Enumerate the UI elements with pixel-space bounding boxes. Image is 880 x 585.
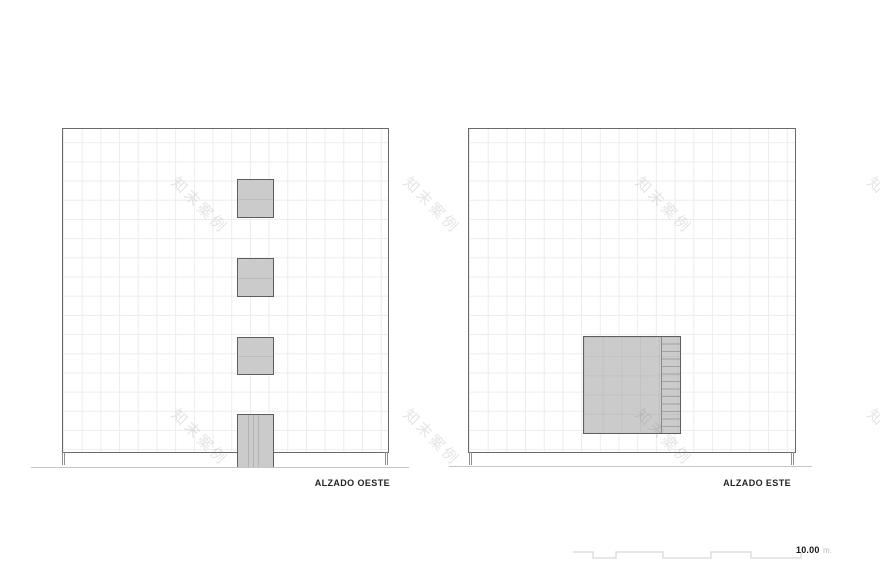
watermark: 知末案例 bbox=[863, 172, 880, 238]
west-ground-line bbox=[31, 467, 409, 468]
watermark: 知末案例 bbox=[399, 404, 465, 470]
east-opening bbox=[583, 336, 681, 434]
scale-bar bbox=[572, 549, 804, 565]
east-foot-left bbox=[469, 452, 472, 465]
east-elevation-label: ALZADO ESTE bbox=[723, 478, 791, 488]
west-elevation-label: ALZADO OESTE bbox=[315, 478, 390, 488]
east-foot-right bbox=[791, 452, 794, 465]
scale-bar-steps bbox=[572, 549, 804, 565]
scale-value: 10.00 bbox=[796, 545, 820, 555]
watermark: 知末案例 bbox=[863, 404, 880, 470]
west-door bbox=[237, 414, 274, 468]
drawing-sheet: ALZADO OESTE ALZADO ESTE 10.00 m. 知末案例 知… bbox=[0, 0, 880, 585]
west-foot-left bbox=[62, 452, 65, 465]
east-ground-line bbox=[449, 466, 812, 467]
west-window-2 bbox=[237, 258, 274, 297]
west-foot-right bbox=[385, 452, 388, 465]
west-elevation-wall bbox=[62, 128, 389, 453]
scale-unit-label: m. bbox=[823, 546, 832, 555]
east-opening-ladder bbox=[661, 337, 680, 433]
west-window-3 bbox=[237, 337, 274, 375]
watermark: 知末案例 bbox=[399, 172, 465, 238]
west-window-1 bbox=[237, 179, 274, 218]
